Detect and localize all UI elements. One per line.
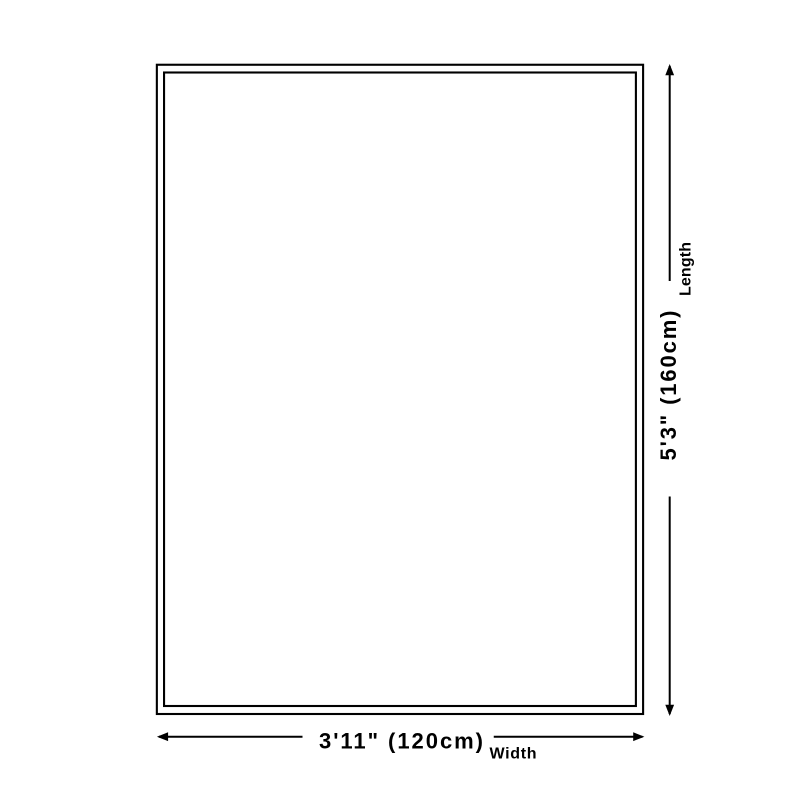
svg-text:Length: Length — [677, 242, 694, 296]
svg-text:3'11" (120cm): 3'11" (120cm) — [319, 728, 483, 753]
svg-text:5'3" (160cm): 5'3" (160cm) — [656, 311, 681, 461]
svg-text:Width: Width — [490, 746, 537, 763]
